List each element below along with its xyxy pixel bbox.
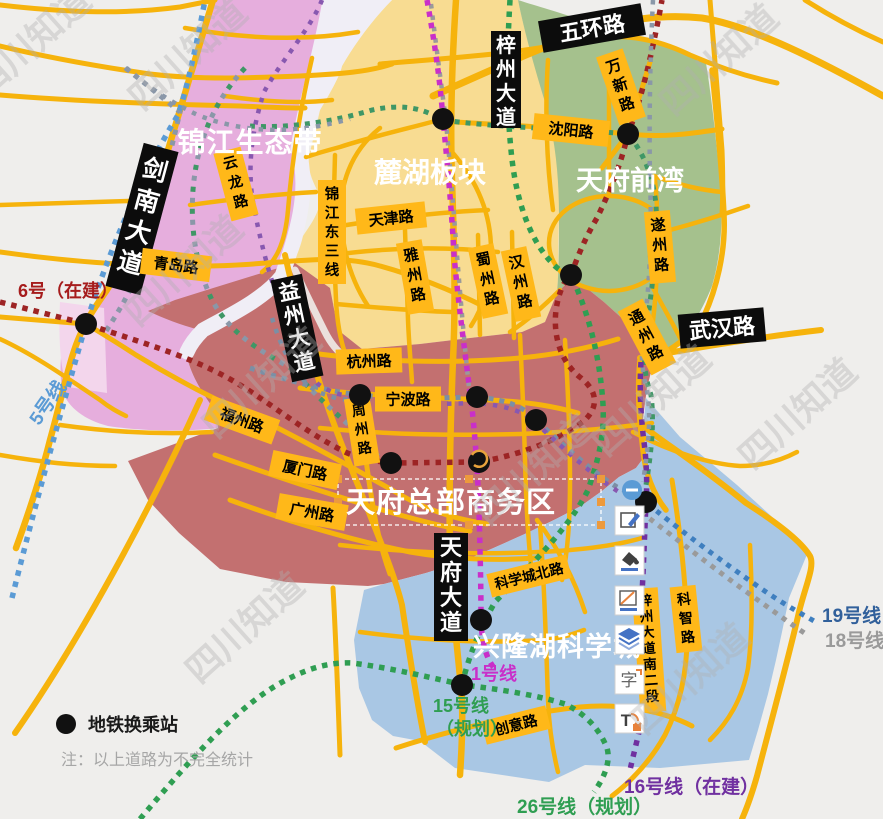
- svg-text:1号线: 1号线: [471, 663, 517, 684]
- svg-text:（规划）: （规划）: [436, 718, 508, 739]
- svg-text:16号线（在建）: 16号线（在建）: [624, 775, 759, 798]
- svg-text:注：以上道路为不完全统计: 注：以上道路为不完全统计: [61, 751, 253, 769]
- svg-text:字: 字: [621, 671, 638, 690]
- svg-text:宁波路: 宁波路: [385, 391, 431, 409]
- svg-text:麓湖板块: 麓湖板块: [374, 157, 486, 188]
- svg-text:6号（在建）: 6号（在建）: [18, 280, 118, 301]
- svg-text:天府大道: 天府大道: [440, 535, 463, 635]
- svg-text:19号线: 19号线: [822, 604, 881, 627]
- svg-text:地铁换乘站: 地铁换乘站: [88, 714, 178, 735]
- svg-text:杭州路: 杭州路: [346, 352, 393, 372]
- svg-text:26号线（规划）: 26号线（规划）: [517, 795, 652, 818]
- svg-text:锦江东三线: 锦江东三线: [325, 185, 340, 279]
- svg-text:锦江生态带: 锦江生态带: [177, 127, 322, 158]
- svg-text:18号线: 18号线: [825, 629, 883, 652]
- svg-text:天府前湾: 天府前湾: [576, 165, 684, 196]
- svg-text:15号线: 15号线: [433, 695, 489, 716]
